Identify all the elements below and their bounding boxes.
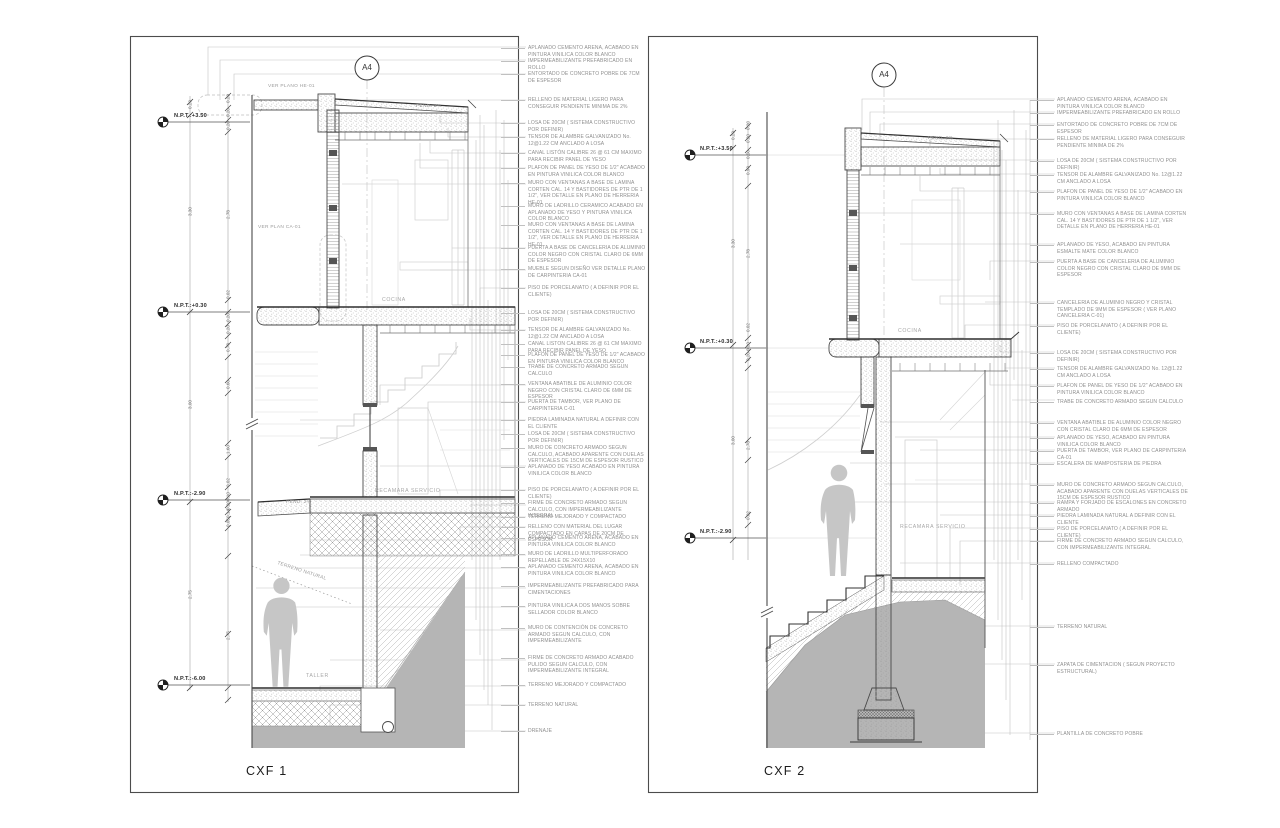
annotation-note: RELLENO COMPACTADO — [1057, 561, 1189, 568]
annotation-note: LOSA DE 20CM ( SISTEMA CONSTRUCTIVO POR … — [528, 431, 646, 444]
annotation-note: TENSOR DE ALAMBRE GALVANIZADO No. 12@1.2… — [1057, 172, 1189, 185]
annotation-note: FIRME DE CONCRETO ARMADO SEGUN CALCULO, … — [1057, 538, 1189, 551]
corten-wall — [847, 170, 859, 340]
level-label: N.P.T.:-2.90 — [174, 491, 206, 497]
annotation-note: VENTANA ABATIBLE DE ALUMINIO COLOR NEGRO… — [1057, 420, 1189, 433]
dim-label: 1.60 — [226, 440, 231, 460]
window-sash — [861, 408, 874, 452]
annotation-note: MURO DE CONCRETO ARMADO SEGUN CALCULO, A… — [1057, 482, 1189, 502]
background-linework — [198, 80, 510, 494]
dim-label: 0.60 — [226, 375, 231, 395]
annotation-note: CANAL LISTÓN CALIBRE 26 @ 61 CM MAXIMO P… — [528, 150, 646, 163]
dim-label: 3.30 — [731, 234, 736, 254]
annotation-note: IMPERMEABILIZANTE PREFABRICADO EN ROLLO — [1057, 110, 1189, 117]
annotation-note: PINTURA VINILICA A DOS MANOS SOBRE SELLA… — [528, 603, 646, 616]
dim-label: 0.05 — [226, 513, 231, 533]
annotation-note: LOSA DE 20CM ( SISTEMA CONSTRUCTIVO POR … — [528, 310, 646, 323]
annotation-note: LOSA DE 20CM ( SISTEMA CONSTRUCTIVO POR … — [528, 120, 646, 133]
dim-label: 0.20 — [226, 320, 231, 340]
annotation-note: PISO DE PORCELANATO ( A DEFINIR POR EL C… — [528, 285, 646, 298]
drain-pit — [361, 688, 395, 733]
human-silhouette — [821, 465, 856, 576]
annotation-note: LOSA DE 20CM ( SISTEMA CONSTRUCTIVO POR … — [1057, 158, 1189, 171]
annotation-note: TENSOR DE ALAMBRE GALVANIZADO No. 12@1.2… — [1057, 366, 1189, 379]
annotation-note: TENSOR DE ALAMBRE GALVANIZADO No. 12@1.2… — [528, 134, 646, 147]
annotation-note: APLANADO CEMENTO ARENA, ACABADO EN PINTU… — [528, 564, 646, 577]
annotation-note: MURO DE LADRILLO MULTIPERFORADO REPELLAB… — [528, 551, 646, 564]
room-label-cocina: COCINA — [382, 297, 406, 303]
room-label-taller: TALLER — [306, 673, 329, 679]
annotation-note: CANCELERIA DE ALUMINIO NEGRO Y CRISTAL T… — [1057, 300, 1189, 320]
dim-label: 0.20 — [226, 116, 231, 136]
annotation-note: APLANADO DE YESO, ACABADO EN PINTURA VIN… — [1057, 435, 1189, 448]
dim-label: 2.75 — [188, 585, 193, 605]
dim-label: 0.78 — [226, 338, 231, 358]
sheet1-title: CXF 1 — [246, 764, 287, 778]
level-label: N.P.T.:-2.90 — [700, 529, 732, 535]
annotation-note: TRABE DE CONCRETO ARMADO SEGUN CALCULO — [1057, 399, 1189, 406]
annotation-note: TERRENO NATURAL — [1057, 624, 1189, 631]
annotation-note: VENTANA ABATIBLE DE ALUMINIO COLOR NEGRO… — [528, 381, 646, 401]
dim-label: 2.78 — [226, 205, 231, 225]
annotation-note: APLANADO CEMENTO ARENA, ACABADO EN PINTU… — [528, 45, 646, 58]
sheet2-title: CXF 2 — [764, 764, 805, 778]
level-label: N.P.T.:+0.30 — [174, 303, 207, 309]
annotation-note: ENTORTADO DE CONCRETO POBRE DE 7CM DE ES… — [1057, 122, 1189, 135]
annotation-note: ENTORTADO DE CONCRETO POBRE DE 7CM DE ES… — [528, 71, 646, 84]
drawing-canvas: A4 CXF 1 N.P.T.:+3.50 N.P.T.:+0.30 N.P.T… — [0, 0, 1280, 828]
roof-slab — [845, 128, 1008, 175]
corten-wall — [327, 110, 339, 308]
ref-label-he01: VER PLANO HE-01 — [268, 84, 315, 89]
annotation-note: TERRENO MEJORADO Y COMPACTADO — [528, 514, 646, 521]
dim-label: 3.00 — [188, 395, 193, 415]
drain-circle — [383, 722, 394, 733]
annotation-note: PIEDRA LAMINADA NATURAL A DEFINIR CON EL… — [1057, 513, 1189, 526]
dim-label: 0.20 — [731, 126, 736, 146]
annotation-note: APLANADO DE YESO ACABADO EN PINTURA VINI… — [528, 464, 646, 477]
annotation-note: TERRENO MEJORADO Y COMPACTADO — [528, 682, 646, 689]
dim-label: 0.20 — [746, 347, 751, 367]
dim-label: 2.78 — [746, 244, 751, 264]
annotation-note: MURO CON VENTANAS A BASE DE LAMINA CORTE… — [1057, 211, 1189, 231]
annotation-note: APLANADO CEMENTO ARENA, ACABADO EN PINTU… — [1057, 97, 1189, 110]
annotation-note: PISO DE PORCELANATO ( A DEFINIR POR EL C… — [528, 487, 646, 500]
slope-label: PEND. 2% — [928, 136, 953, 141]
slope-label: PEND. 2% — [286, 500, 311, 505]
annotation-note: PLAFON DE PANEL DE YESO DE 1/2" ACABADO … — [528, 165, 646, 178]
annotation-note: PLAFON DE PANEL DE YESO DE 1/2" ACABADO … — [1057, 189, 1189, 202]
annotation-note: RAMPA Y FORJADO DE ESCALONES EN CONCRETO… — [1057, 500, 1189, 513]
annotation-note: MUEBLE SEGUN DISEÑO VER DETALLE PLANO DE… — [528, 266, 646, 279]
annotation-note: PLANTILLA DE CONCRETO POBRE — [1057, 731, 1189, 738]
level-label: N.P.T.:+0.30 — [700, 339, 733, 345]
annotation-note: FIRME DE CONCRETO ARMADO ACABADO PULIDO … — [528, 655, 646, 675]
annotation-note: MURO DE CONCRETO ARMADO SEGUN CALCULO, A… — [528, 445, 646, 465]
dim-label: 3.30 — [188, 202, 193, 222]
dim-label: 2.78 — [746, 436, 751, 456]
slope-label: PEND. 2% — [416, 104, 441, 109]
level-label: N.P.T.:+3.50 — [700, 146, 733, 152]
annotation-note: PIEDRA LAMINADA NATURAL A DEFINIR CON EL… — [528, 417, 646, 430]
annotation-note: DRENAJE — [528, 728, 646, 735]
detail-marker-label: A4 — [355, 63, 379, 72]
annotation-note: PUERTA A BASE DE CANCELERIA DE ALUMINIO … — [528, 245, 646, 265]
annotation-note: TRABE DE CONCRETO ARMADO SEGUN CALCULO — [528, 364, 646, 377]
annotation-note: PISO DE PORCELANATO ( A DEFINIR POR EL C… — [1057, 323, 1189, 336]
level-label: N.P.T.:-6.00 — [174, 676, 206, 682]
human-silhouette — [263, 578, 297, 687]
dim-label: 0.90 — [746, 161, 751, 181]
annotation-note: ESCALERA DE MAMPOSTERIA DE PIEDRA — [1057, 461, 1189, 468]
annotation-note: MURO DE CONTENCIÓN DE CONCRETO ARMADO SE… — [528, 625, 646, 645]
annotation-note: PLAFON DE PANEL DE YESO DE 1/2" ACABADO … — [1057, 383, 1189, 396]
annotation-note: LOSA DE 20CM ( SISTEMA CONSTRUCTIVO POR … — [1057, 350, 1189, 363]
dim-label: 0.20 — [188, 95, 193, 115]
roof-slab — [254, 94, 476, 140]
dim-label: 0.02 — [226, 285, 231, 305]
annotation-note: ZAPATA DE CIMENTACION ( SEGUN PROYECTO E… — [1057, 662, 1189, 675]
annotation-note: MURO DE LADRILLO CERAMICO ACABADO EN APL… — [528, 203, 646, 223]
dim-label: 0.02 — [746, 318, 751, 338]
annotation-note: TERRENO NATURAL — [528, 702, 646, 709]
dim-label: 2.75 — [226, 626, 231, 646]
annotation-note: TENSOR DE ALAMBRE GALVANIZADO No. 12@1.2… — [528, 327, 646, 340]
room-label-recamara: RECAMARA SERVICIO — [375, 488, 440, 494]
annotation-note: PUERTA A BASE DE CANCELERIA DE ALUMINIO … — [1057, 259, 1189, 279]
annotation-note: APLANADO DE YESO, ACABADO EN PINTURA ESM… — [1057, 242, 1189, 255]
room-label-recamara: RECAMARA SERVICIO — [900, 524, 965, 530]
detail-marker-label: A4 — [872, 70, 896, 79]
dim-label: 0.02 — [746, 506, 751, 526]
annotation-note: PUERTA DE TAMBOR, VER PLANO DE CARPINTER… — [1057, 448, 1189, 461]
annotation-note: IMPERMEABILIZANTE PREFABRICADO EN ROLLO — [528, 58, 646, 71]
annotation-note: RELLENO DE MATERIAL LIGERO PARA CONSEGUI… — [528, 97, 646, 110]
annotation-note: IMPERMEABILIZANTE PREFABRICADO PARA CIME… — [528, 583, 646, 596]
room-label-cocina: COCINA — [898, 328, 922, 334]
dimension-chains — [158, 93, 250, 703]
ref-label-ca01: VER PLAN CA-01 — [258, 225, 301, 230]
annotation-note: RELLENO DE MATERIAL LIGERO PARA CONSEGUI… — [1057, 136, 1189, 149]
annotation-note: PUERTA DE TAMBOR, VER PLANO DE CARPINTER… — [528, 399, 646, 412]
dim-label: 3.00 — [731, 431, 736, 451]
annotation-note: APLANADO CEMENTO ARENA, ACABADO EN PINTU… — [528, 535, 646, 548]
